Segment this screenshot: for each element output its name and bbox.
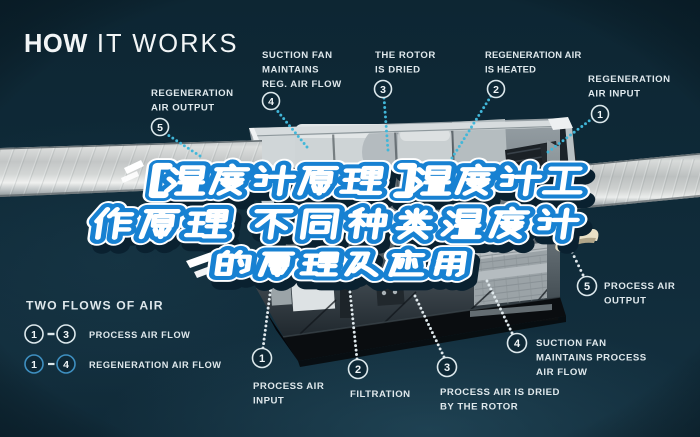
svg-text:AIR INPUT: AIR INPUT	[588, 89, 640, 100]
svg-text:TWO FLOWS OF AIR: TWO FLOWS OF AIR	[26, 299, 164, 313]
svg-text:IS HEATED: IS HEATED	[485, 64, 536, 75]
svg-text:PROCESS AIR: PROCESS AIR	[604, 281, 675, 292]
svg-text:SUCTION FAN: SUCTION FAN	[262, 50, 333, 61]
svg-text:MAINTAINS: MAINTAINS	[262, 65, 319, 76]
svg-text:HOW IT WORKS: HOW IT WORKS	[24, 30, 239, 58]
svg-text:4: 4	[268, 96, 274, 108]
svg-text:AIR FLOW: AIR FLOW	[536, 367, 588, 378]
svg-text:REGENERATION: REGENERATION	[588, 74, 671, 85]
svg-text:REGENERATION AIR FLOW: REGENERATION AIR FLOW	[89, 360, 222, 370]
svg-text:2: 2	[493, 84, 499, 96]
svg-text:THE ROTOR: THE ROTOR	[375, 50, 436, 61]
svg-text:1: 1	[31, 329, 37, 341]
svg-text:PROCESS AIR FLOW: PROCESS AIR FLOW	[89, 330, 190, 340]
svg-text:4: 4	[514, 338, 521, 350]
svg-text:3: 3	[444, 362, 450, 374]
svg-text:PROCESS AIR: PROCESS AIR	[253, 381, 324, 392]
svg-text:1: 1	[31, 359, 37, 371]
svg-text:2: 2	[355, 364, 361, 376]
svg-text:FILTRATION: FILTRATION	[350, 389, 411, 400]
svg-text:5: 5	[584, 281, 590, 293]
svg-text:4: 4	[63, 359, 69, 371]
svg-text:MAINTAINS PROCESS: MAINTAINS PROCESS	[536, 353, 647, 364]
svg-text:BY THE ROTOR: BY THE ROTOR	[440, 402, 518, 413]
svg-text:AIR OUTPUT: AIR OUTPUT	[151, 103, 215, 114]
svg-text:REG. AIR FLOW: REG. AIR FLOW	[262, 79, 342, 90]
svg-text:REGENERATION AIR: REGENERATION AIR	[485, 49, 581, 60]
svg-text:3: 3	[380, 84, 386, 96]
svg-text:REGENERATION: REGENERATION	[151, 88, 234, 99]
svg-text:IS DRIED: IS DRIED	[375, 65, 421, 76]
svg-text:SUCTION FAN: SUCTION FAN	[536, 338, 607, 349]
svg-text:INPUT: INPUT	[253, 396, 284, 407]
svg-text:1: 1	[259, 353, 265, 365]
svg-text:1: 1	[597, 109, 603, 121]
svg-text:PROCESS AIR IS DRIED: PROCESS AIR IS DRIED	[440, 387, 560, 398]
svg-text:5: 5	[157, 122, 163, 134]
svg-text:3: 3	[63, 329, 69, 341]
svg-text:OUTPUT: OUTPUT	[604, 296, 646, 307]
